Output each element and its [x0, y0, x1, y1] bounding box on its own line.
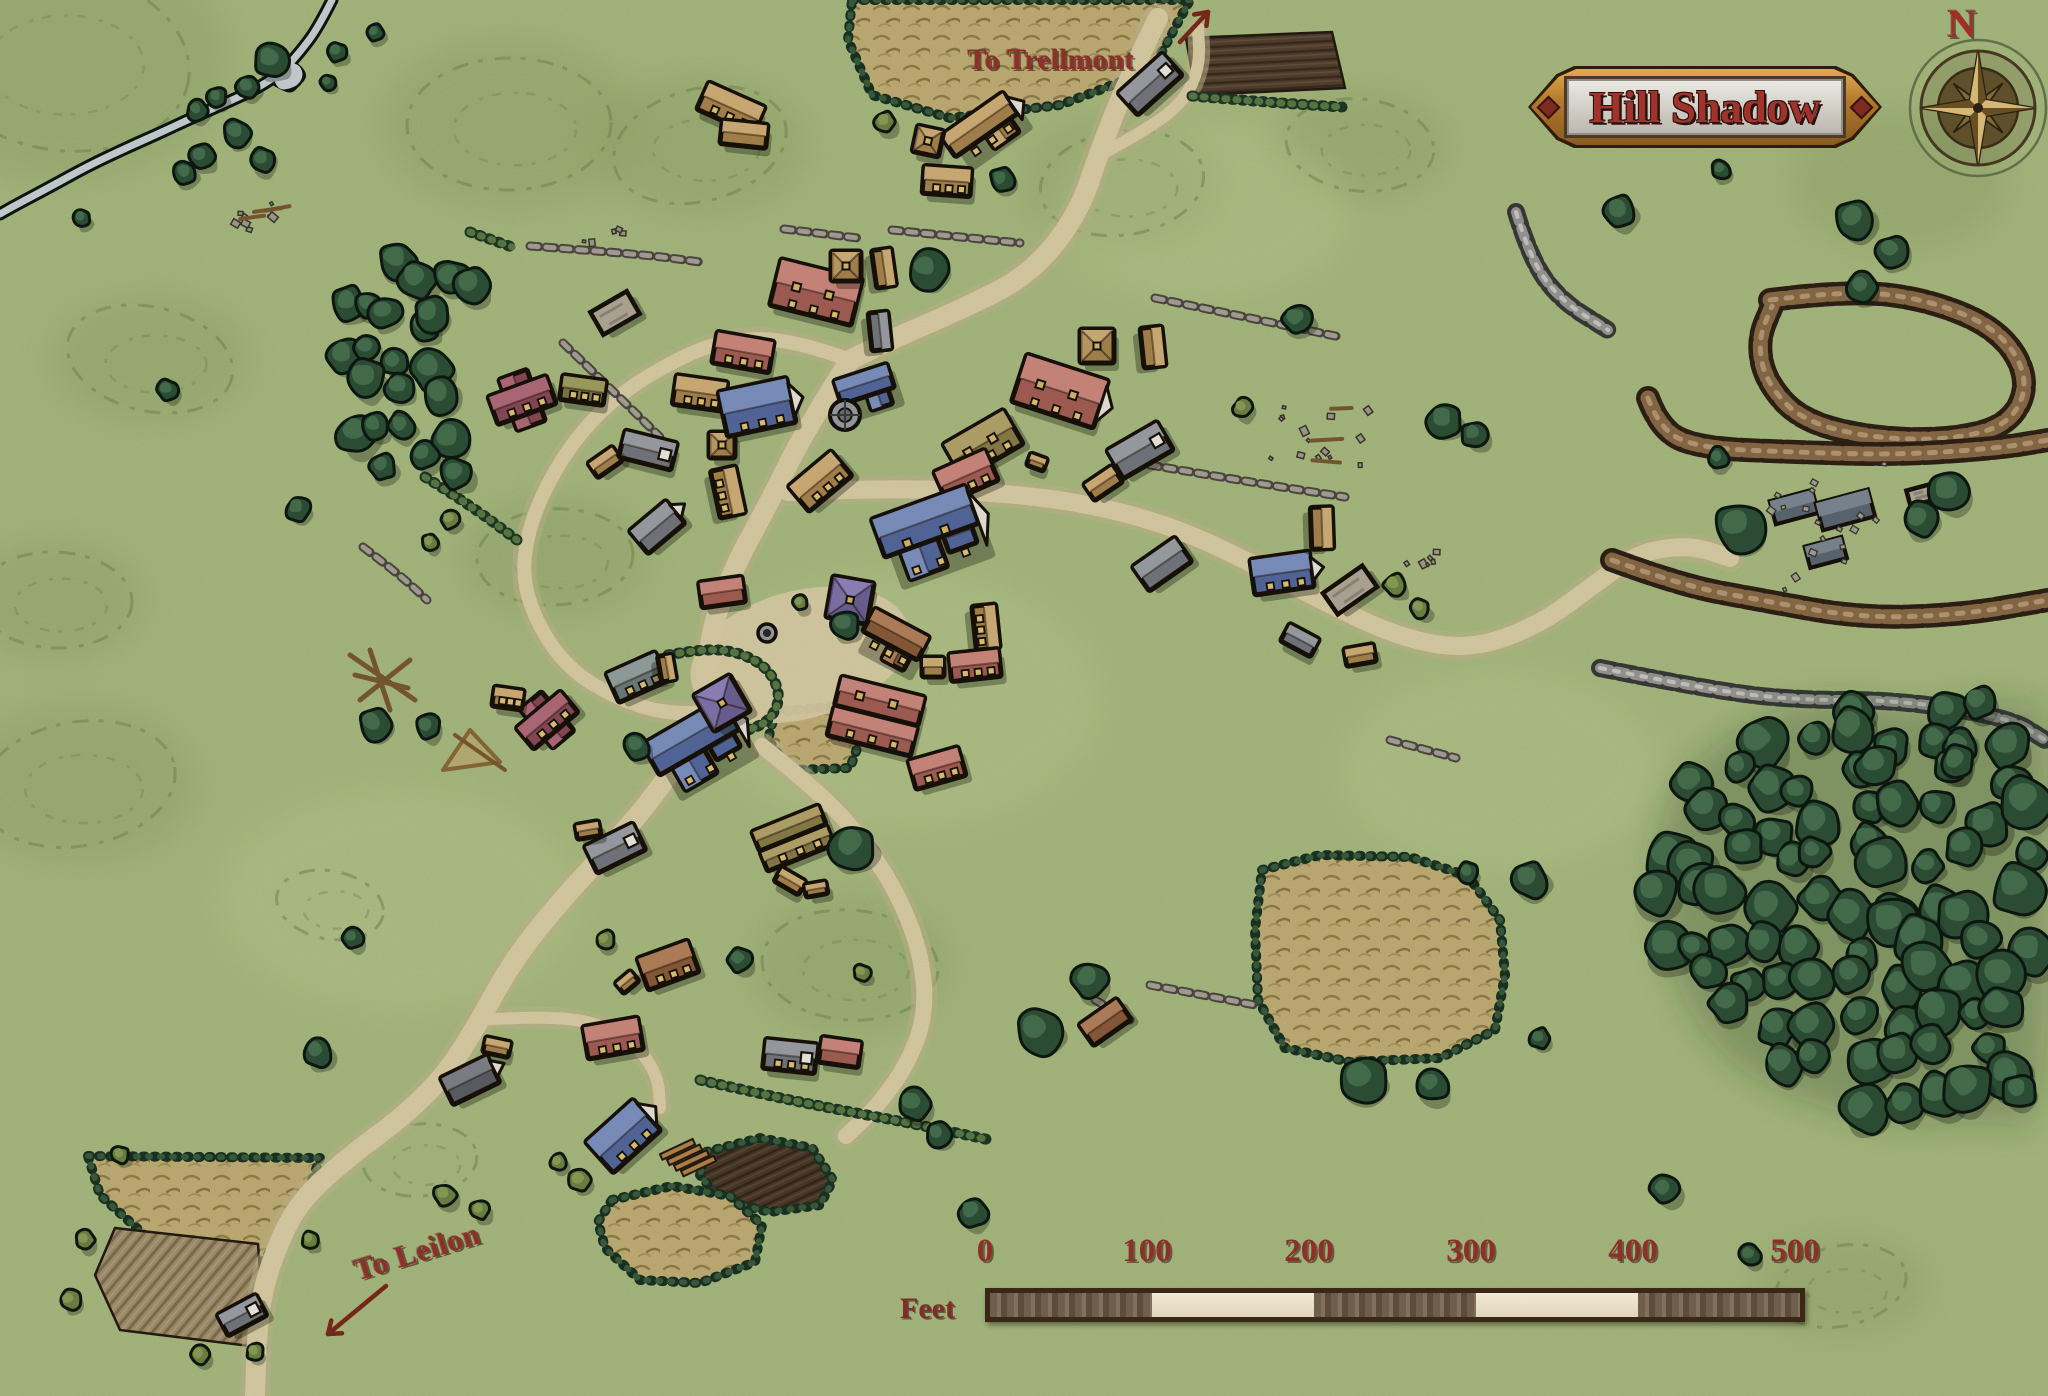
map-artwork: [0, 0, 2048, 1396]
scale-bar-segment: [1476, 1293, 1638, 1317]
road-label-trellmont: To Trellmont: [946, 44, 1156, 77]
scale-tick-400: 400: [1608, 1233, 1658, 1270]
scale-unit-label: Feet: [900, 1292, 955, 1326]
scale-tick-200: 200: [1284, 1233, 1334, 1270]
scale-tick-100: 100: [1122, 1233, 1172, 1270]
grain-overlay: [0, 0, 2048, 1396]
scale-bar-segment: [990, 1293, 1152, 1317]
map-title-banner: Hill Shadow: [1528, 66, 1882, 148]
scale-bar-segment: [1314, 1293, 1476, 1317]
map-title: Hill Shadow: [1528, 66, 1882, 148]
scale-tick-300: 300: [1446, 1233, 1496, 1270]
compass-north-label: N: [1934, 0, 1990, 47]
scale-bar: [985, 1288, 1805, 1322]
scale-bar-segment: [1638, 1293, 1800, 1317]
village-map-canvas: Hill Shadow N To Trellmont To Leilon Fee…: [0, 0, 2048, 1396]
scale-tick-500: 500: [1770, 1233, 1820, 1270]
scale-tick-0: 0: [977, 1233, 994, 1270]
scale-bar-segment: [1152, 1293, 1314, 1317]
